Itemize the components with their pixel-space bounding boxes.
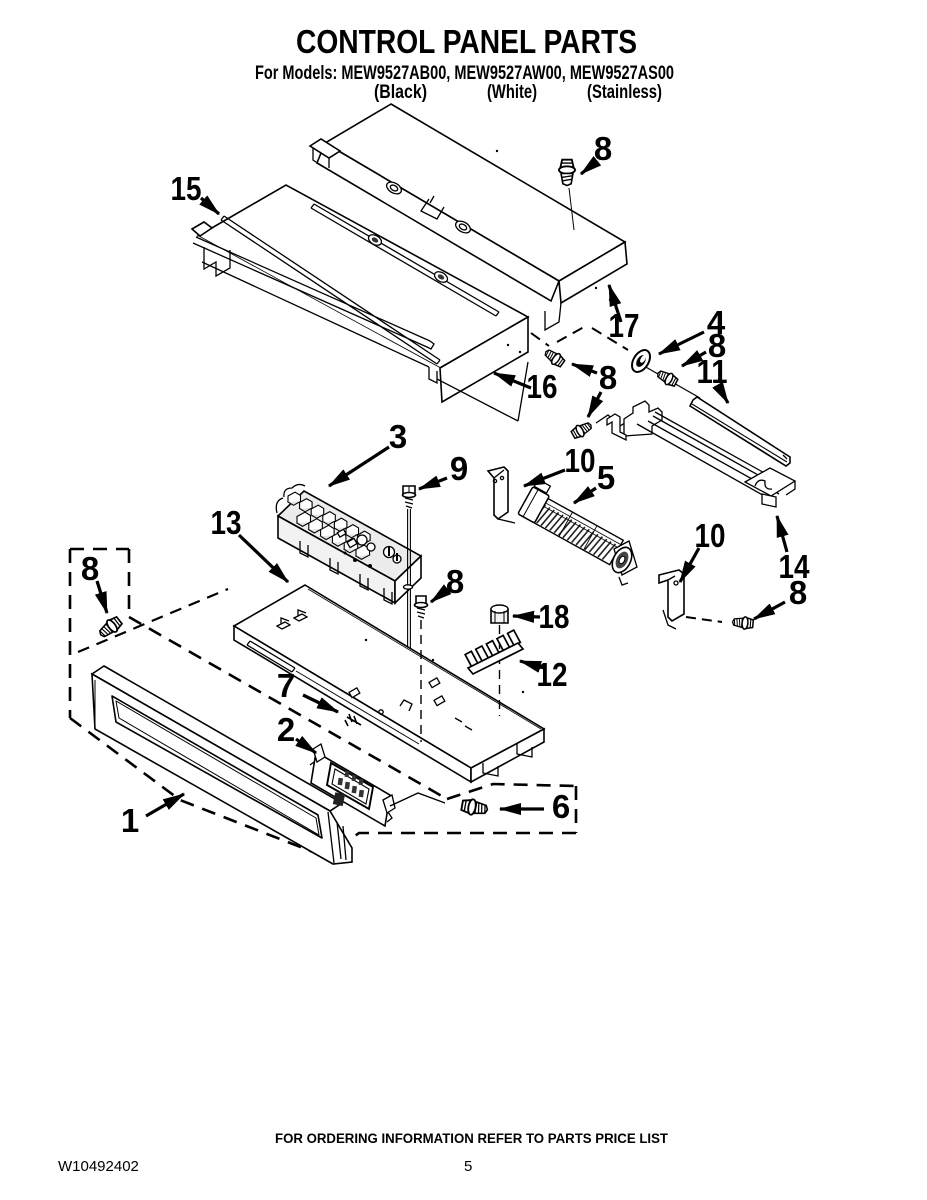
svg-text:15: 15 [171,170,202,207]
svg-text:9: 9 [450,450,468,487]
svg-text:W10492402: W10492402 [58,1158,139,1175]
svg-text:1: 1 [121,802,139,839]
svg-text:18: 18 [539,598,570,635]
svg-text:11: 11 [697,353,728,390]
svg-text:3: 3 [389,418,407,455]
svg-text:2: 2 [277,711,295,748]
svg-text:5: 5 [464,1158,472,1175]
svg-text:17: 17 [609,307,640,344]
svg-text:12: 12 [537,656,568,693]
svg-text:10: 10 [565,442,596,479]
svg-text:(Stainless): (Stainless) [587,82,662,103]
svg-text:8: 8 [599,359,617,396]
svg-text:For Models: MEW9527AB00, MEW95: For Models: MEW9527AB00, MEW9527AW00, ME… [255,63,674,84]
svg-text:(White): (White) [487,82,537,103]
svg-text:13: 13 [211,504,242,541]
svg-text:FOR ORDERING INFORMATION REFER: FOR ORDERING INFORMATION REFER TO PARTS … [275,1131,669,1146]
svg-text:5: 5 [597,459,615,496]
svg-text:8: 8 [789,574,807,611]
svg-text:CONTROL PANEL PARTS: CONTROL PANEL PARTS [296,23,637,60]
svg-text:(Black): (Black) [374,82,427,103]
svg-text:6: 6 [552,788,570,825]
svg-text:8: 8 [446,563,464,600]
svg-text:7: 7 [277,667,295,704]
